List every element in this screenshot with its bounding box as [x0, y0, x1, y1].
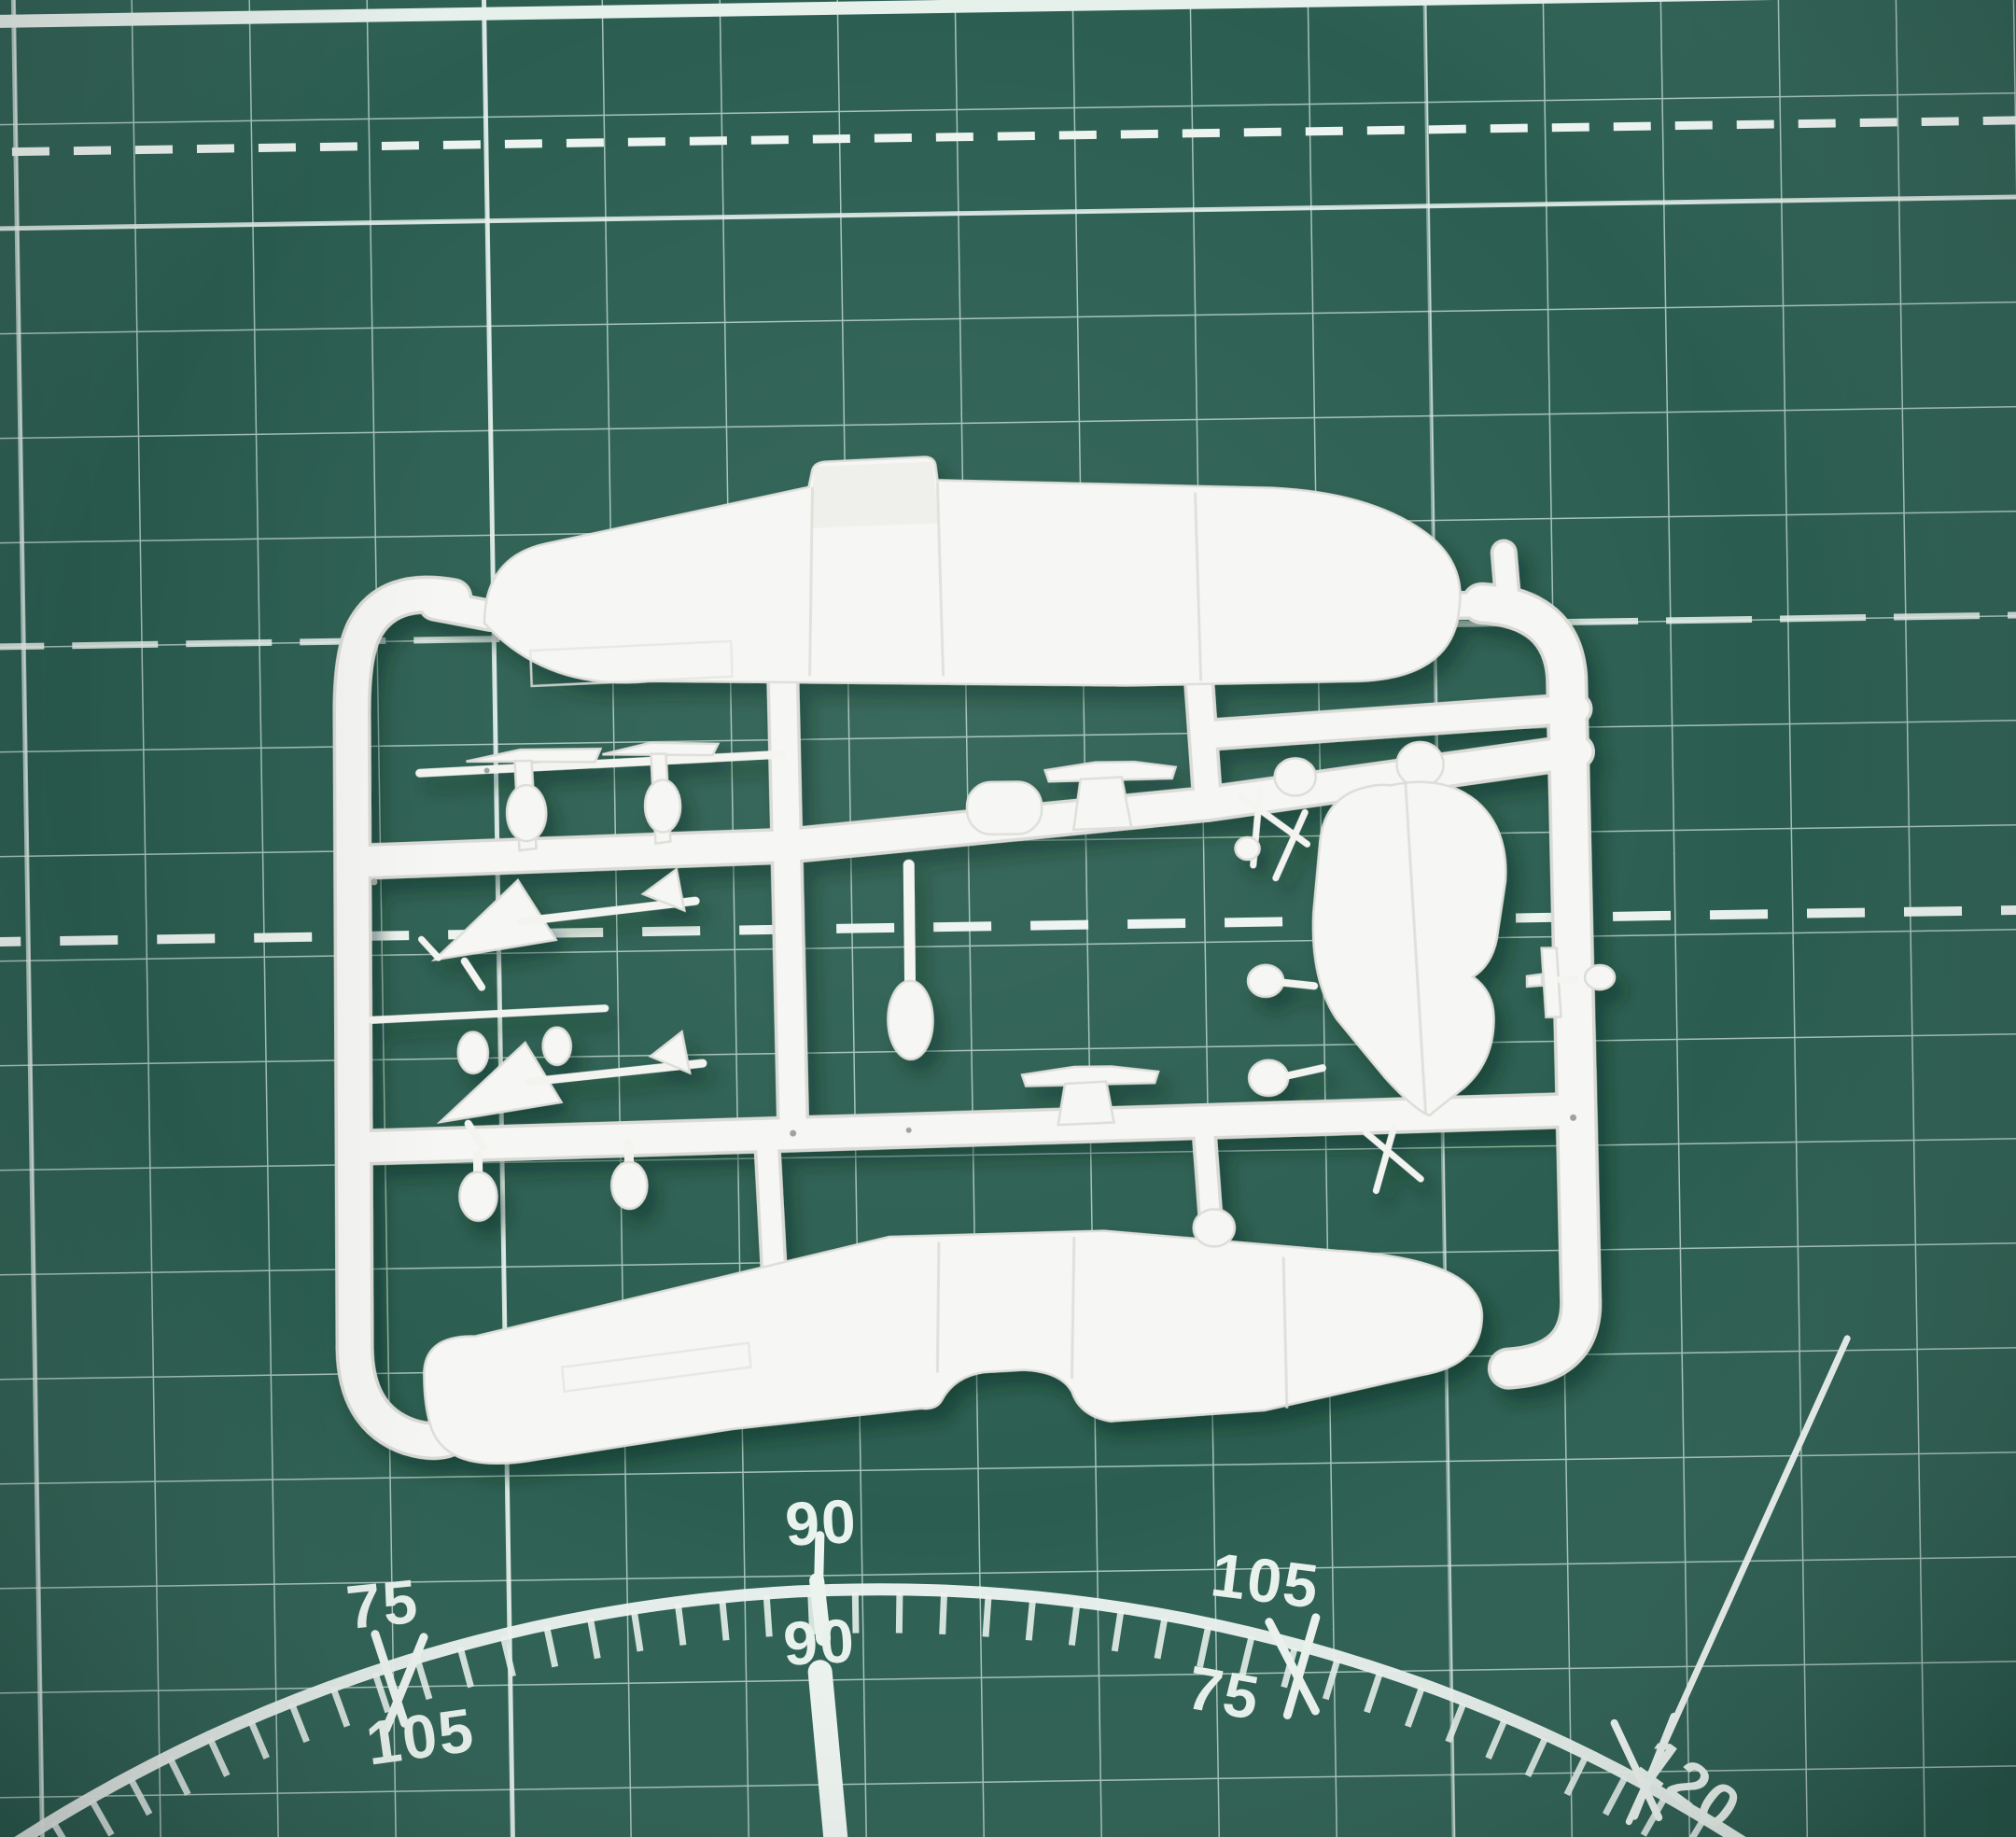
vignette	[0, 0, 2016, 1837]
photo-of-sprue-on-cutting-mat: 75 90 105 120 105 90 75	[0, 0, 2016, 1837]
photo-canvas: 75 90 105 120 105 90 75	[0, 0, 2016, 1837]
